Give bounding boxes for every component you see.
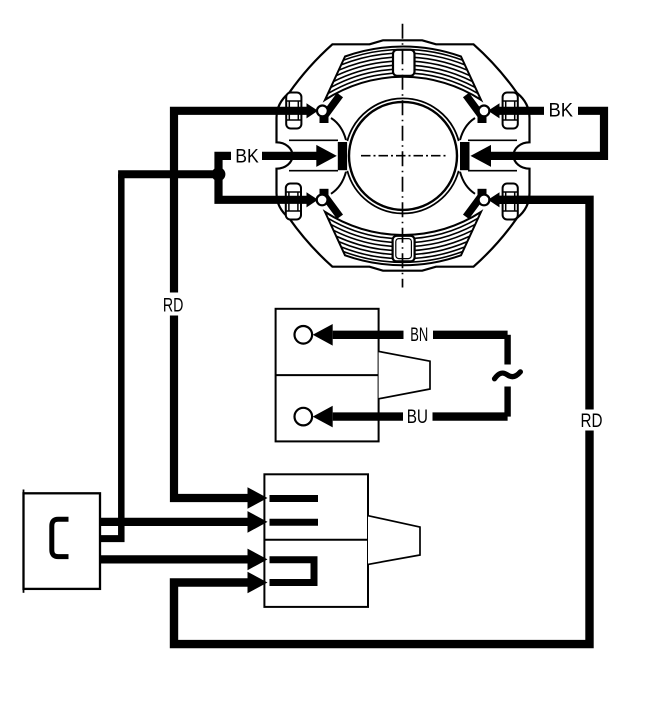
svg-text:BN: BN (410, 325, 428, 346)
svg-text:BK: BK (235, 146, 259, 167)
svg-text:RD: RD (581, 411, 603, 432)
svg-text:BU: BU (407, 407, 428, 428)
svg-text:RD: RD (163, 295, 184, 316)
svg-text:BK: BK (549, 100, 574, 121)
